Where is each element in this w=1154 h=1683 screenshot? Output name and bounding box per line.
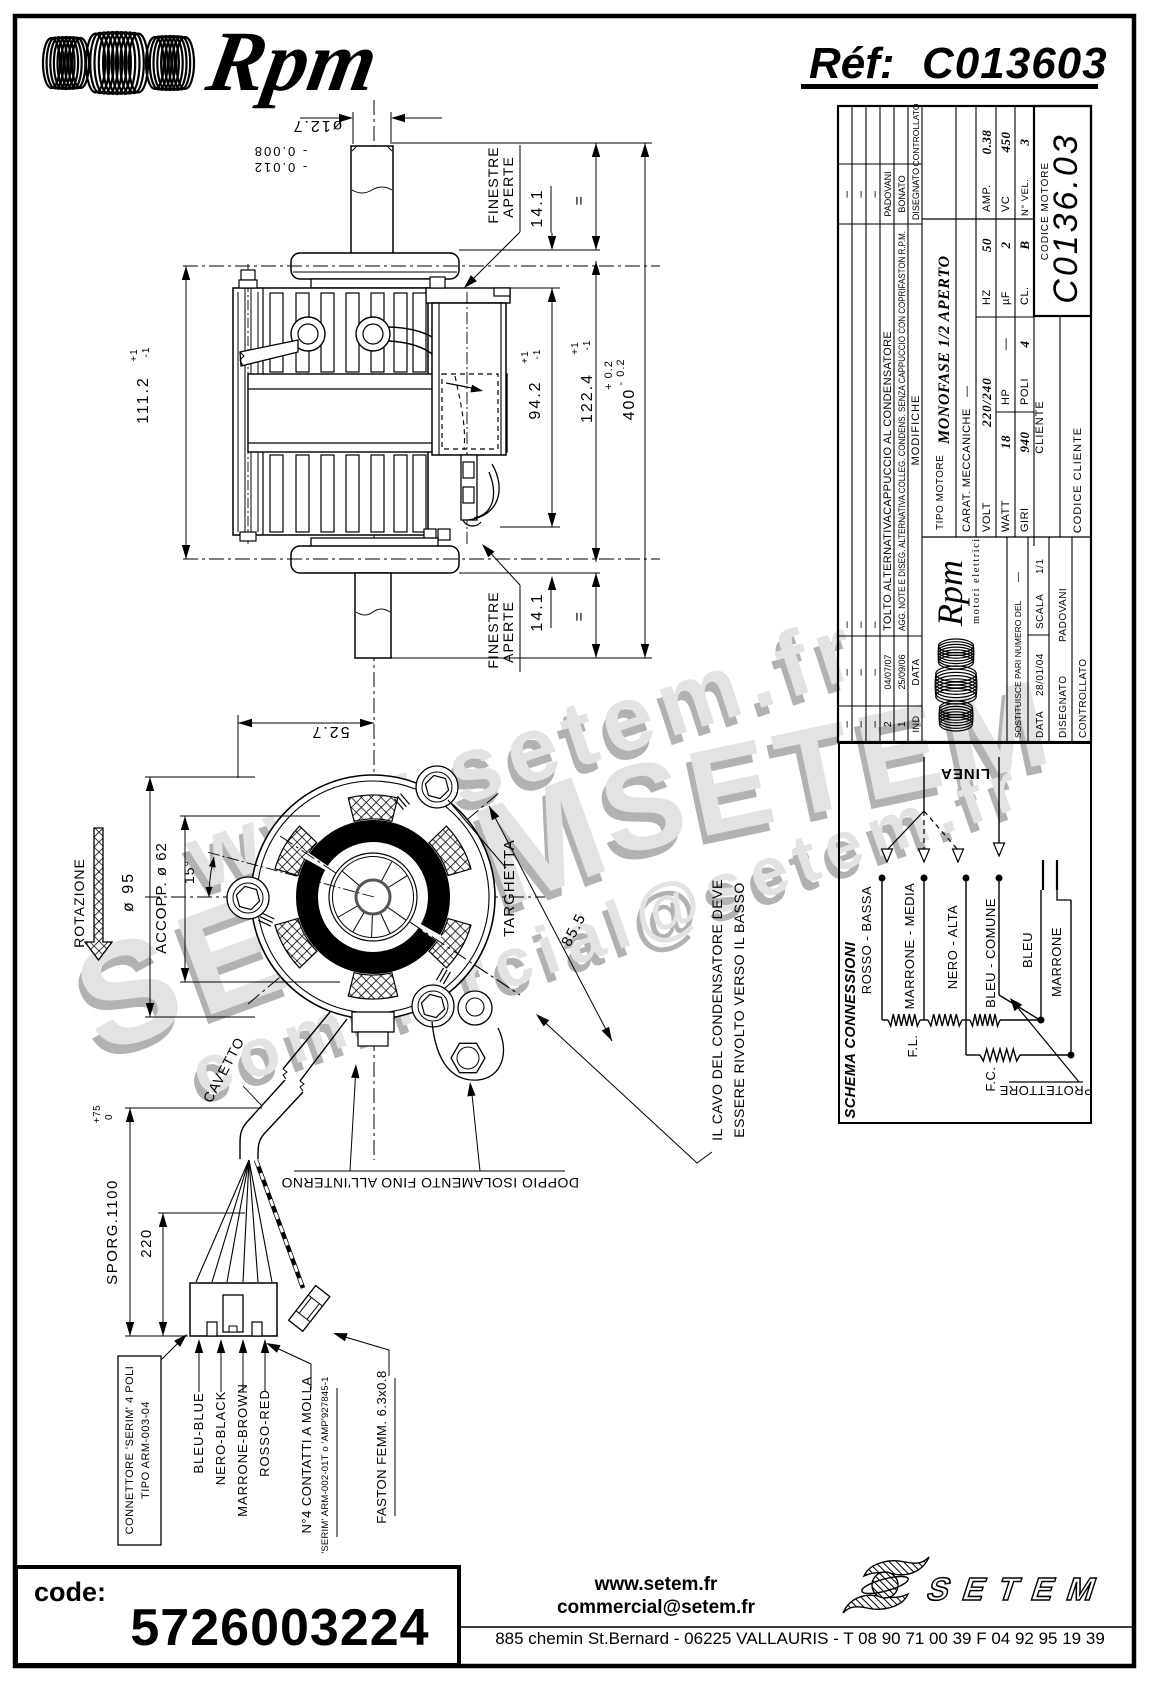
svg-text:IL CAVO DEL CONDENSATORE DEVE: IL CAVO DEL CONDENSATORE DEVE: [709, 879, 725, 1141]
svg-text:APERTE: APERTE: [500, 156, 516, 218]
svg-text:52.7: 52.7: [310, 723, 349, 740]
svg-text:DOPPIO ISOLAMENTO FINO ALL'INT: DOPPIO ISOLAMENTO FINO ALL'INTERNO: [281, 1175, 579, 1191]
svg-text:POLI: POLI: [1019, 378, 1031, 405]
svg-text:15°: 15°: [181, 860, 197, 884]
svg-text:MONOFASE 1/2 APERTO: MONOFASE 1/2 APERTO: [936, 255, 953, 445]
svg-text:–: –: [867, 668, 881, 675]
svg-text:ø12.7: ø12.7: [292, 117, 343, 134]
svg-text:FASTON FEMM. 6.3x0.8: FASTON FEMM. 6.3x0.8: [374, 1370, 389, 1524]
svg-text:+1: +1: [520, 350, 531, 363]
svg-text:2: 2: [883, 721, 894, 727]
svg-text:www.setem.fr: www.setem.fr: [594, 1574, 718, 1595]
svg-text:TIPO ARM-003-04: TIPO ARM-003-04: [140, 1401, 152, 1499]
svg-text:CONNETTORE 'SERIM' 4 POLI: CONNETTORE 'SERIM' 4 POLI: [124, 1366, 136, 1535]
svg-text:DATA: DATA: [911, 658, 922, 685]
svg-text:F.L.: F.L.: [905, 1035, 920, 1058]
svg-text:111.2: 111.2: [135, 376, 152, 424]
svg-text:LINEA: LINEA: [940, 765, 990, 782]
svg-text:+ 0.2: + 0.2: [603, 360, 615, 390]
svg-text:TIPO MOTORE: TIPO MOTORE: [935, 455, 946, 530]
svg-text:50: 50: [979, 238, 994, 252]
svg-text:NERO - ALTA: NERO - ALTA: [945, 905, 960, 989]
svg-text:220/240: 220/240: [979, 377, 994, 428]
svg-text:+1: +1: [570, 341, 581, 354]
svg-text:CONTROLLATO: CONTROLLATO: [1078, 658, 1089, 738]
svg-text:18: 18: [998, 435, 1013, 449]
svg-text:–: –: [867, 190, 881, 197]
svg-text:–: –: [853, 190, 867, 197]
svg-text:C0136.03: C0136.03: [1047, 132, 1085, 303]
svg-text:- 0.012: - 0.012: [253, 160, 307, 175]
svg-text:C013603: C013603: [922, 39, 1108, 88]
svg-text:N°4 CONTATTI A MOLLA: N°4 CONTATTI A MOLLA: [299, 1376, 314, 1533]
svg-text:28/01/04: 28/01/04: [1035, 653, 1046, 696]
svg-text:–: –: [839, 621, 853, 628]
svg-text:–: –: [867, 720, 881, 727]
svg-text:PADOVANI: PADOVANI: [1058, 588, 1069, 642]
svg-text:IND: IND: [911, 716, 921, 733]
svg-text:NERO-BLACK: NERO-BLACK: [213, 1391, 228, 1486]
svg-text:WATT: WATT: [1000, 500, 1012, 532]
svg-text:PROTETTORE: PROTETTORE: [999, 1083, 1093, 1098]
svg-text:TOLTO ALTERNATIVACAPPUCCIO AL: TOLTO ALTERNATIVACAPPUCCIO AL CONDENSATO…: [882, 331, 894, 631]
svg-text:commercial@setem.fr: commercial@setem.fr: [557, 1597, 756, 1618]
svg-text:code:: code:: [34, 1577, 106, 1607]
svg-text:ROSSO-RED: ROSSO-RED: [257, 1389, 272, 1477]
svg-text:ø 95: ø 95: [120, 872, 137, 912]
svg-text:+1: +1: [129, 348, 140, 361]
svg-text:–: –: [839, 720, 853, 727]
svg-text:- 0.008: - 0.008: [253, 144, 307, 159]
svg-text:0.38: 0.38: [979, 130, 994, 155]
svg-text:DISEGNATO: DISEGNATO: [911, 168, 921, 220]
svg-text:3: 3: [1017, 139, 1032, 147]
svg-text:1/1: 1/1: [1035, 559, 1046, 574]
svg-text:14.1: 14.1: [529, 188, 546, 227]
svg-text:'SERIM' ARM-002-01T o 'AMP'927: 'SERIM' ARM-002-01T o 'AMP'927845-1: [320, 1376, 331, 1553]
svg-text:-1: -1: [582, 340, 593, 351]
svg-text:SCHEMA CONNESSIONI: SCHEMA CONNESSIONI: [843, 941, 859, 1118]
svg-text:PADOVANI: PADOVANI: [883, 171, 893, 216]
svg-text:220: 220: [138, 1228, 155, 1258]
svg-text:TARGHETTA: TARGHETTA: [501, 839, 518, 937]
svg-text:motori elettrici: motori elettrici: [971, 537, 982, 624]
svg-text:VOLT: VOLT: [981, 502, 993, 532]
svg-text:14.1: 14.1: [529, 592, 546, 631]
svg-text:—: —: [1013, 572, 1024, 583]
svg-text:CODICE CLIENTE: CODICE CLIENTE: [1072, 427, 1084, 533]
svg-text:—: —: [998, 338, 1012, 351]
svg-text:MARRONE: MARRONE: [1049, 927, 1064, 997]
svg-text:N° VEL.: N° VEL.: [1020, 179, 1031, 216]
svg-text:–: –: [853, 720, 867, 727]
svg-text:0: 0: [104, 1114, 115, 1120]
svg-text:2: 2: [998, 242, 1013, 250]
svg-text:–: –: [853, 621, 867, 628]
svg-text:SOSTITUISCE PARI NUMERO DEL: SOSTITUISCE PARI NUMERO DEL: [1013, 600, 1023, 738]
svg-text:04/07/07: 04/07/07: [883, 654, 893, 689]
svg-text:=: =: [571, 195, 588, 206]
svg-text:=: =: [571, 611, 588, 622]
svg-text:-1: -1: [532, 349, 543, 360]
svg-text:94.2: 94.2: [527, 380, 544, 419]
svg-text:GIRI: GIRI: [1019, 507, 1031, 532]
svg-text:25/09/06: 25/09/06: [897, 654, 907, 689]
svg-text:SCALA: SCALA: [1035, 594, 1046, 629]
svg-text:AGG. NOTE E DISEG. ALTERNATIVA: AGG. NOTE E DISEG. ALTERNATIVA COLLEG. C…: [897, 231, 907, 631]
svg-text:ROSSO - BASSA: ROSSO - BASSA: [859, 886, 874, 994]
svg-text:B: B: [1017, 240, 1032, 250]
svg-text:HP: HP: [1000, 389, 1012, 405]
svg-text:4: 4: [1017, 341, 1032, 349]
svg-text:–: –: [867, 621, 881, 628]
svg-text:Rpm: Rpm: [930, 560, 970, 627]
svg-text:SETEM: SETEM: [923, 1571, 1115, 1607]
svg-text:450: 450: [998, 132, 1013, 154]
svg-text:- 0.2: - 0.2: [615, 358, 627, 385]
svg-text:Réf:: Réf:: [809, 39, 895, 88]
svg-text:MARRONE-BROWN: MARRONE-BROWN: [235, 1383, 250, 1517]
svg-text:-1: -1: [141, 347, 152, 358]
svg-text:1: 1: [897, 721, 908, 727]
svg-text:MODIFICHE: MODIFICHE: [910, 395, 922, 466]
svg-text:5726003224: 5726003224: [130, 1599, 429, 1657]
svg-text:DATA: DATA: [1035, 711, 1046, 738]
svg-text:CONTROLLATO: CONTROLLATO: [911, 103, 921, 166]
svg-text:CL.: CL.: [1019, 286, 1031, 305]
svg-text:Rpm: Rpm: [200, 14, 385, 109]
svg-text:–: –: [853, 668, 867, 675]
svg-text:BONATO: BONATO: [897, 175, 907, 212]
svg-text:FINESTRE: FINESTRE: [485, 591, 501, 668]
svg-text:CARAT. MECCANICHE: CARAT. MECCANICHE: [961, 408, 973, 532]
svg-text:HZ: HZ: [981, 289, 993, 305]
svg-text:ROTAZIONE: ROTAZIONE: [71, 858, 87, 948]
svg-text:VC: VC: [1000, 196, 1012, 212]
svg-text:DISEGNATO: DISEGNATO: [1058, 676, 1069, 738]
svg-text:BLEU-BLUE: BLEU-BLUE: [191, 1392, 206, 1473]
svg-text:F.C.: F.C.: [983, 1066, 998, 1091]
svg-text:122.4: 122.4: [579, 373, 596, 423]
svg-text:+75: +75: [92, 1105, 103, 1123]
svg-text:–: –: [839, 190, 853, 197]
svg-text:940: 940: [1017, 432, 1032, 453]
svg-text:BLEU - COMUNE: BLEU - COMUNE: [983, 898, 998, 1008]
svg-text:SPORG.1100: SPORG.1100: [104, 1179, 121, 1285]
svg-text:ESSERE RIVOLTO VERSO IL BASSO: ESSERE RIVOLTO VERSO IL BASSO: [731, 882, 747, 1137]
svg-text:µF: µF: [1000, 291, 1012, 305]
svg-text:ACCOPP. ø 62: ACCOPP. ø 62: [153, 842, 170, 954]
svg-text:885 chemin St.Bernard - 0622: 885 chemin St.Bernard - 06225 VALLAURIS …: [495, 1629, 1105, 1648]
svg-text:400: 400: [621, 388, 638, 421]
svg-text:—: —: [961, 386, 973, 398]
svg-text:FINESTRE: FINESTRE: [485, 146, 501, 223]
svg-text:–: –: [839, 668, 853, 675]
svg-text:BLEU: BLEU: [1020, 932, 1035, 968]
svg-text:AMP.: AMP.: [981, 185, 993, 212]
svg-text:CLIENTE: CLIENTE: [1034, 400, 1046, 453]
svg-text:APERTE: APERTE: [500, 601, 516, 663]
svg-text:MARRONE - MEDIA: MARRONE - MEDIA: [902, 883, 917, 1010]
